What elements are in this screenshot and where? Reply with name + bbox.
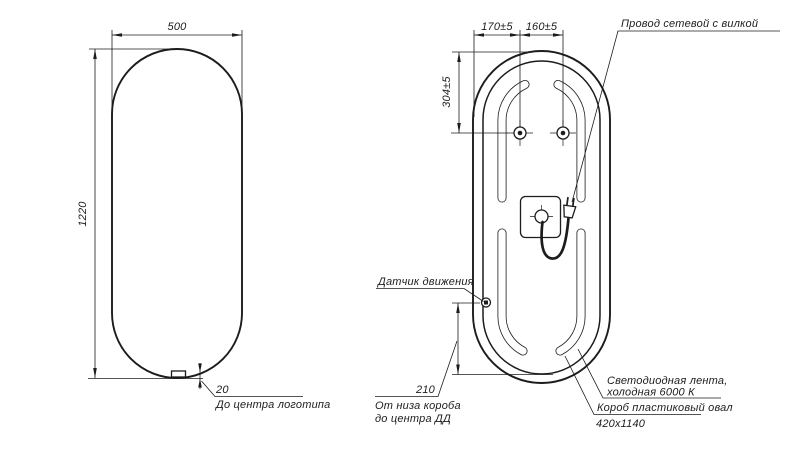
mirror-front-outline [112,49,242,378]
sensor-height-note-line2: до центра ДД [375,413,451,425]
power-cord-label: Провод сетевой с вилкой [621,18,758,30]
mount-screw-right-icon [550,120,576,146]
front-height-dimension: 1220 [77,49,97,378]
sensor-height-note-line1: От низа короба [375,400,461,412]
mount-top-dimension: 304±5 [441,52,461,133]
front-view: 500 1220 20 До центра логотипа [77,21,331,411]
plastic-box-label-line1: Короб пластиковый овал [597,402,733,414]
drawing-canvas: 500 1220 20 До центра логотипа [0,0,800,458]
power-plug-icon [562,197,577,218]
motion-sensor-icon [482,298,491,307]
led-strip-label-line2: холодная 6000 К [606,387,695,399]
mount-offset-value: 170±5 [481,21,513,33]
mount-top-value: 304±5 [441,76,453,108]
front-height-value: 1220 [77,201,89,227]
mount-screw-left-icon [507,120,533,146]
logo-offset-value: 20 [215,384,229,396]
power-cord-note: Провод сетевой с вилкой [572,18,780,202]
sensor-height-value: 210 [415,384,436,396]
front-width-value: 500 [168,21,188,33]
logo-offset-dimension: 20 До центра логотипа [198,363,330,411]
back-view: 170±5 160±5 304±5 [375,18,780,430]
mount-spacing-dimensions: 170±5 160±5 [474,21,563,37]
front-width-dimension: 500 [112,21,242,37]
logo-note-label: До центра логотипа [214,399,331,411]
mount-spacing-value: 160±5 [526,21,558,33]
motion-sensor-label: Датчик движения [376,276,474,288]
plastic-box-label-line2: 420х1140 [596,418,646,430]
led-strip-label-line1: Светодиодная лента, [607,375,727,387]
led-strip-note: Светодиодная лента, холодная 6000 К [578,349,727,399]
logo-mark [172,371,186,377]
motion-sensor-note: Датчик движения [376,276,484,302]
sensor-height-dimension: 210 От низа короба до центра ДД [375,303,461,425]
mirror-technical-drawing: 500 1220 20 До центра логотипа [0,0,800,458]
